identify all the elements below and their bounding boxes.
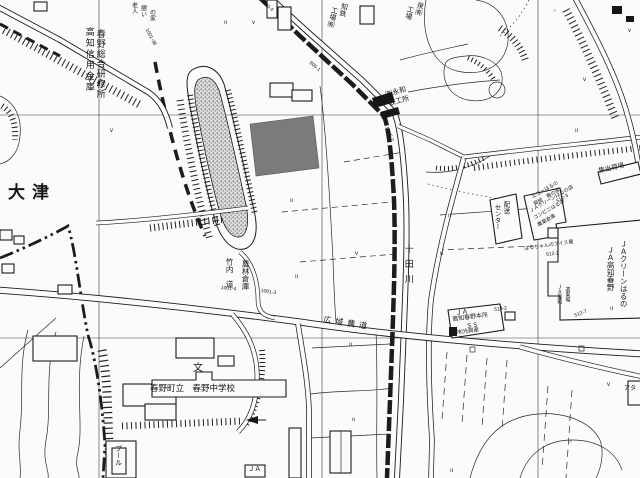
label-hikari-kosan: ㈲光興産 [457, 328, 480, 337]
parcel-number-512-2: 512-2 [546, 251, 559, 258]
label-haruno-sogo-kenshujo: 春野総合研修所 [95, 29, 105, 99]
parcel-number-513-2: 513-2 [494, 306, 507, 313]
label-rojin-ikoi-no-ie-2: 憩い [139, 5, 145, 17]
symbol-school: 文 [193, 364, 203, 375]
parcel-number-805-1: 805-1 [308, 61, 321, 73]
paddy-symbol: ıı [290, 198, 293, 204]
paddy-symbol: ıı [224, 20, 227, 26]
label-kochi-tekko-1: 知鉄 [338, 2, 349, 17]
label-haiso-center-1: 配送 [502, 201, 509, 214]
grass-symbol: v [252, 20, 255, 26]
grass-symbol: v [110, 128, 113, 134]
label-otsu: 大津 [8, 184, 56, 202]
label-toda-gawa: 十田川 [403, 244, 413, 289]
label-takeuchi-michi: 竹内 道 [225, 258, 233, 288]
label-rojin-ikoi-no-ie-3: の家 [148, 9, 154, 21]
paddy-symbol: ıı [450, 468, 453, 474]
grass-symbol: v [583, 77, 586, 83]
label-izumi-kojo-2: 工場 [404, 5, 415, 20]
parcel-number-800-4: 800-4 [261, 1, 274, 13]
grass-symbol: v [628, 28, 631, 34]
label-ja-kochi-sub: ＪＡ高知 [556, 284, 561, 304]
label-kochi-tekko-2: 工場㈲ [326, 6, 338, 28]
paddy-symbol: ıı [575, 128, 578, 134]
label-ja-clean-haruno: ＪＡクリーンはるの [619, 240, 627, 308]
paddy-symbol: ıı [295, 274, 298, 280]
label-rojin-ikoi-no-ie-1: 老人 [130, 2, 136, 14]
parcel-number-512-7: 512-7 [574, 310, 588, 319]
grass-symbol: v [607, 382, 610, 388]
parcel-number-1001-3: 1001-3 [260, 289, 276, 297]
topographic-map[interactable]: 高知信用金庫春野総合研修所老人憩いの家知鉄工場㈲泉㈲工場㈲永和鉄工所大津竹内 道… [0, 0, 640, 478]
label-kochi-shinyo-kinko: 高知信用金庫 [84, 27, 94, 93]
map-labels: 高知信用金庫春野総合研修所老人憩いの家知鉄工場㈲泉㈲工場㈲永和鉄工所大津竹内 道… [0, 0, 640, 478]
label-haiso-center-2: センター [493, 204, 500, 230]
label-haruno-chugakko: 春野町立 春野中学校 [150, 384, 235, 393]
paddy-symbol: ıı [440, 251, 443, 257]
parcel-number-1001-38: 1001-38 [143, 28, 156, 47]
paddy-symbol: ıı [352, 417, 355, 423]
paddy-symbol: ıı [610, 306, 613, 312]
label-shushukkajo: 集出荷場 [598, 162, 625, 175]
parcel-number-1001-4: 1001-4 [221, 286, 237, 293]
grass-symbol: v [355, 251, 358, 257]
label-koiki-nodo: 広域農道 [323, 316, 372, 332]
label-pool: プール [114, 445, 122, 466]
label-senkajo: 選果場 [564, 287, 569, 302]
label-ja-kochi-haruno: ＪＡ高知春野 [606, 246, 614, 291]
paddy-symbol: ıı [349, 342, 352, 348]
label-ata: アタ [624, 386, 636, 392]
label-ja-box: ＪＡ [248, 466, 261, 473]
parcel-number-1005-2: 1005-2 [383, 126, 394, 142]
label-norin-soko: 農林倉庫 [241, 260, 249, 290]
orchard-symbol: ○ [553, 9, 556, 14]
label-izumi-kojo-1: 泉㈲ [414, 1, 425, 16]
paddy-symbol: ıı [448, 213, 451, 219]
orchard-symbol: ○ [569, 440, 572, 445]
